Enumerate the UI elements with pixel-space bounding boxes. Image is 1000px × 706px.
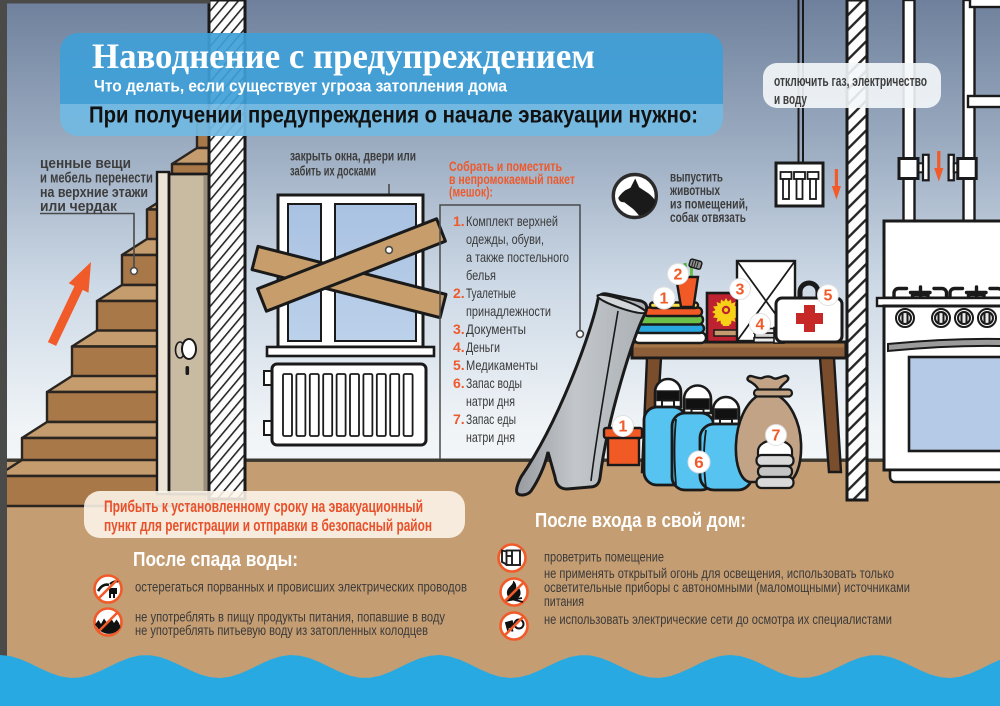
svg-text:натри дня: натри дня (466, 393, 515, 409)
svg-text:1: 1 (660, 291, 669, 308)
svg-text:3: 3 (736, 282, 745, 299)
svg-text:После входа в свой дом:: После входа в свой дом: (535, 509, 746, 532)
svg-text:7.: 7. (453, 411, 465, 427)
svg-text:6: 6 (694, 453, 703, 472)
svg-text:Запас воды: Запас воды (466, 375, 522, 391)
svg-text:закрыть окна, двери или: закрыть окна, двери или (290, 148, 416, 164)
svg-text:2: 2 (674, 267, 683, 284)
svg-text:Деньги: Деньги (466, 339, 500, 355)
svg-text:1.: 1. (453, 213, 465, 229)
svg-text:3.: 3. (453, 321, 465, 337)
svg-text:белья: белья (466, 267, 496, 283)
svg-text:5.: 5. (453, 357, 465, 373)
svg-text:осветительные приборы с автоно: осветительные приборы с автономными (мал… (544, 580, 910, 595)
svg-text:и воду: и воду (774, 91, 807, 108)
svg-text:собак отвязать: собак отвязать (670, 210, 746, 225)
svg-text:натри дня: натри дня (466, 429, 515, 445)
svg-text:Наводнение с предупреждением: Наводнение с предупреждением (92, 36, 595, 76)
svg-text:Документы: Документы (466, 321, 526, 337)
svg-text:При получении предупреждения о: При получении предупреждения о начале эв… (89, 102, 698, 128)
svg-text:4.: 4. (453, 339, 465, 355)
svg-text:одежды, обуви,: одежды, обуви, (466, 231, 544, 247)
svg-text:Медикаменты: Медикаменты (466, 357, 538, 373)
svg-text:или чердак: или чердак (40, 198, 117, 215)
svg-text:5: 5 (824, 288, 833, 305)
svg-text:остерегаться порванных и прови: остерегаться порванных и провисших элект… (135, 580, 467, 595)
svg-text:После спада воды:: После спада воды: (133, 548, 298, 571)
svg-text:не употреблять питьевую воду и: не употреблять питьевую воду из затоплен… (135, 623, 428, 638)
svg-text:не использовать электрические: не использовать электрические сети до ос… (544, 612, 892, 627)
svg-text:а также постельного: а также постельного (466, 249, 569, 265)
svg-text:Запас еды: Запас еды (466, 411, 516, 427)
svg-text:2.: 2. (453, 285, 465, 301)
svg-text:1: 1 (619, 419, 628, 436)
svg-text:пункт для регистрации и отправ: пункт для регистрации и отправки в безоп… (104, 517, 432, 535)
svg-text:7: 7 (772, 428, 781, 445)
svg-text:забить их досками: забить их досками (290, 163, 376, 179)
svg-text:Туалетные: Туалетные (466, 285, 516, 301)
svg-text:принадлежности: принадлежности (466, 303, 551, 319)
svg-text:(мешок):: (мешок): (449, 184, 493, 200)
svg-text:отключить газ, электричество: отключить газ, электричество (774, 73, 927, 90)
svg-text:Что делать, если существует уг: Что делать, если существует угроза затоп… (94, 78, 508, 96)
svg-text:проветрить помещение: проветрить помещение (544, 550, 664, 565)
svg-text:6.: 6. (453, 375, 465, 391)
svg-text:Прибыть к установленному сроку: Прибыть к установленному сроку на эвакуа… (104, 498, 423, 516)
svg-text:питания: питания (544, 594, 584, 609)
svg-text:не применять открытый огонь дл: не применять открытый огонь для освещени… (544, 566, 894, 581)
svg-text:Комплект верхней: Комплект верхней (466, 213, 558, 229)
svg-text:4: 4 (756, 317, 765, 334)
